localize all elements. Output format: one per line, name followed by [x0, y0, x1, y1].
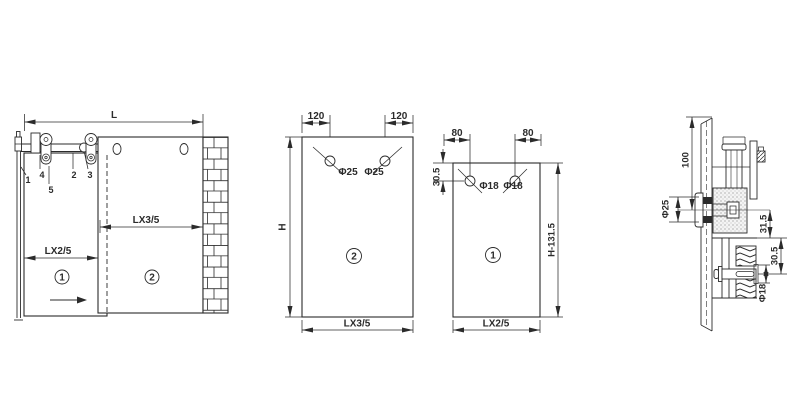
- dim-label-total-width: L: [111, 110, 117, 121]
- elevation-view: 1 4 2 3 5 L LX3/5 LX2/5: [14, 110, 228, 320]
- hole-phi25-left: [325, 156, 335, 166]
- wheel-flange-top: [722, 144, 746, 150]
- end-stop-block: [31, 133, 40, 153]
- dim-label-fixed-width: LX3/5: [133, 215, 160, 226]
- part-label-hanger: 5: [48, 185, 53, 195]
- svg-text:80: 80: [451, 128, 463, 139]
- hole-phi25-right: [380, 156, 390, 166]
- svg-text:2: 2: [351, 252, 357, 263]
- svg-text:Φ25: Φ25: [661, 199, 672, 218]
- part-label-spacer: 3: [87, 170, 92, 180]
- hole-label-phi25-left: Φ25: [338, 167, 358, 178]
- svg-text:Φ18: Φ18: [758, 284, 769, 302]
- svg-text:1: 1: [490, 251, 496, 262]
- fixed-door-hole-left: [113, 144, 121, 155]
- clamp-bolt-head: [714, 270, 719, 279]
- svg-text:H-131.5: H-131.5: [547, 222, 558, 257]
- gasket-bottom: [736, 279, 756, 298]
- hole-label-phi18-right: Φ18: [503, 181, 523, 192]
- part-label-track-end: 1: [25, 175, 30, 185]
- part-label-end-block: 4: [39, 170, 44, 180]
- svg-text:30.5: 30.5: [432, 167, 443, 186]
- svg-text:80: 80: [522, 128, 534, 139]
- sliding-door-installation-drawing: 1 4 2 3 5 L LX3/5 LX2/5: [0, 0, 800, 400]
- svg-text:100: 100: [681, 152, 692, 168]
- roller-hanger-right: [85, 134, 97, 165]
- svg-text:H: H: [278, 223, 289, 230]
- door2-tag: 2: [145, 270, 159, 284]
- svg-text:120: 120: [391, 111, 408, 122]
- fixed-panel-tag: 2: [347, 249, 362, 264]
- svg-text:1: 1: [59, 273, 65, 284]
- wheel-body: [726, 150, 742, 190]
- sliding-panel-tag: 1: [486, 248, 501, 263]
- sliding-door-panel: [24, 153, 107, 316]
- part-label-track: 2: [71, 170, 76, 180]
- brick-wall: [203, 137, 228, 313]
- svg-text:2: 2: [149, 273, 155, 284]
- fixed-door-hole-right: [180, 144, 188, 155]
- clamp-plate: [722, 238, 729, 298]
- adjust-bolt: [757, 151, 765, 162]
- dim-label-sliding-width: LX2/5: [45, 246, 72, 257]
- gasket-top: [736, 246, 756, 266]
- hole-label-phi18-left: Φ18: [479, 181, 499, 192]
- fixed-panel-outline: [302, 137, 413, 317]
- hole-label-phi25-right: Φ25: [364, 167, 384, 178]
- clamp-bolt-sleeve: [736, 272, 754, 277]
- svg-text:30.5: 30.5: [770, 246, 781, 265]
- svg-text:31.5: 31.5: [759, 214, 770, 233]
- bracket-plate: [750, 141, 757, 199]
- svg-text:120: 120: [308, 111, 325, 122]
- stud-washer-top: [703, 197, 712, 204]
- svg-text:LX3/5: LX3/5: [344, 319, 371, 330]
- roller-hanger-left: [40, 134, 52, 165]
- svg-text:LX2/5: LX2/5: [483, 319, 510, 330]
- stud-washer-bottom: [703, 216, 712, 223]
- door1-tag: 1: [55, 270, 69, 284]
- technical-drawing-canvas: 1 4 2 3 5 L LX3/5 LX2/5: [0, 0, 800, 400]
